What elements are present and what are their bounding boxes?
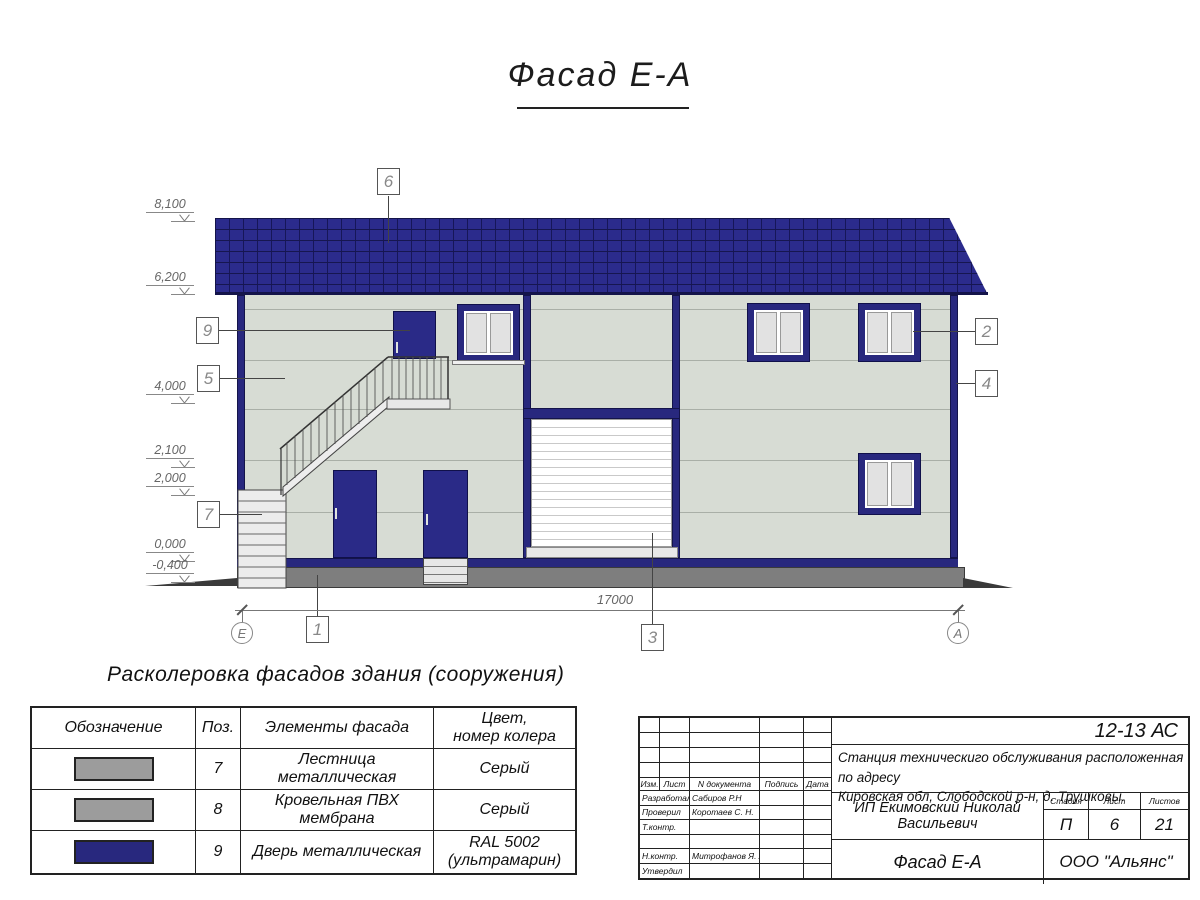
callout-number: 5	[204, 369, 213, 389]
legend-color-line2: (ультрамарин)	[448, 852, 561, 870]
col-header-sign: Подпись	[760, 778, 804, 791]
legend-heading: Расколеровка фасадов здания (сооружения)	[107, 663, 564, 687]
sheet-value: 6	[1089, 810, 1141, 839]
exterior-staircase	[238, 357, 450, 588]
date-cell	[804, 791, 831, 806]
date-cell	[804, 835, 831, 850]
legend-color-line1: RAL 5002	[469, 834, 540, 852]
change-table-cell	[760, 733, 804, 748]
role-name	[690, 835, 760, 850]
callout-3: 3	[641, 624, 664, 651]
callout-5: 5	[197, 365, 220, 392]
elevation-label: 0,000	[146, 537, 194, 551]
role-label: Т.контр.	[640, 820, 690, 835]
elevation-label: 4,000	[146, 379, 194, 393]
organization-name: ООО "Альянс"	[1044, 840, 1188, 884]
stage-label: Стадия	[1044, 793, 1089, 810]
legend-header-element: Элементы фасада	[241, 708, 434, 749]
title-block-signature-grid: Изм. Лист N документа Подпись Дата Разра…	[640, 718, 832, 878]
axis-stem	[958, 611, 959, 622]
legend-swatch-cell	[32, 831, 196, 873]
sheets-label: Листов	[1141, 793, 1188, 810]
col-header-list: Лист	[660, 778, 690, 791]
change-table-cell	[660, 748, 690, 763]
callout-number: 4	[982, 374, 991, 394]
callout-number: 2	[982, 322, 991, 342]
signature-cell	[760, 806, 804, 821]
color-swatch	[74, 840, 154, 864]
legend-header-color: Цвет, номер колера	[434, 708, 575, 749]
leader-line-5	[220, 378, 285, 379]
elevation-label: 2,000	[146, 471, 194, 485]
change-table-cell	[640, 748, 660, 763]
legend-color-cell: Серый	[434, 790, 575, 831]
axis-letter: А	[954, 626, 963, 641]
legend-pos-cell: 8	[196, 790, 241, 831]
change-table-cell	[804, 748, 831, 763]
callout-1: 1	[306, 616, 329, 643]
role-label: Утвердил	[640, 864, 690, 879]
title-block-right: 12-13 АС Станция техническиго обслуживан…	[832, 718, 1188, 878]
legend-element-cell: Кровельная ПВХ мембрана	[241, 790, 434, 831]
legend-color-cell: Серый	[434, 749, 575, 790]
drawing-sheet: Фасад Е-А	[0, 0, 1200, 900]
callout-number: 9	[203, 321, 212, 341]
legend-header-designation: Обозначение	[32, 708, 196, 749]
stage-sheet-grid: Стадия Лист Листов П 6 21	[1044, 793, 1188, 839]
elevation-arrow-icon	[180, 213, 190, 221]
signature-cell	[760, 791, 804, 806]
legend-header-color-line1: Цвет,	[482, 710, 528, 728]
col-header-ndoc: N документа	[690, 778, 760, 791]
elevation-label: -0,400	[146, 558, 194, 572]
change-table-cell	[804, 718, 831, 733]
legend-element-cell: Лестница металлическая	[241, 749, 434, 790]
elevation-base-line	[171, 294, 195, 295]
elevation-base-line	[171, 403, 195, 404]
elevation-arrow-icon	[180, 487, 190, 495]
elevation-arrow-icon	[180, 395, 190, 403]
legend-table: Обозначение Поз. Элементы фасада Цвет, н…	[30, 706, 577, 875]
sheets-value: 21	[1141, 810, 1188, 839]
change-table-cell	[690, 718, 760, 733]
title-block-bottom: Фасад Е-А ООО "Альянс"	[832, 840, 1188, 884]
col-header-izm: Изм.	[640, 778, 660, 791]
change-table-cell	[640, 718, 660, 733]
leader-line-4	[956, 383, 975, 384]
signature-cell	[760, 835, 804, 850]
color-swatch	[74, 798, 154, 822]
signature-cell	[760, 820, 804, 835]
change-table-cell	[690, 733, 760, 748]
legend-header-color-line2: номер колера	[453, 728, 556, 746]
role-name: Митрофанов Я. А.	[690, 849, 760, 864]
change-table-cell	[804, 763, 831, 778]
date-cell	[804, 864, 831, 879]
elevation-base-line	[171, 582, 195, 583]
role-name: Коротаев С. Н.	[690, 806, 760, 821]
legend-pos-cell: 9	[196, 831, 241, 873]
date-cell	[804, 806, 831, 821]
date-cell	[804, 849, 831, 864]
stage-value: П	[1044, 810, 1089, 839]
project-description: Станция техническиго обслуживания распол…	[832, 745, 1188, 793]
elevation-base-line	[171, 221, 195, 222]
role-label	[640, 835, 690, 850]
leader-line-9	[219, 330, 410, 331]
legend-swatch-cell	[32, 749, 196, 790]
callout-9: 9	[196, 317, 219, 344]
callout-6: 6	[377, 168, 400, 195]
leader-line-3	[652, 533, 653, 625]
change-table-cell	[660, 718, 690, 733]
leader-line-2	[913, 331, 975, 332]
callout-number: 1	[313, 620, 322, 640]
wall-seam	[245, 309, 950, 310]
roof-shingles	[215, 218, 988, 295]
change-table-cell	[804, 733, 831, 748]
date-cell	[804, 820, 831, 835]
axis-stem	[242, 611, 243, 622]
elevation-label: 8,100	[146, 197, 194, 211]
ground-wedge-right	[963, 578, 1013, 588]
sheet-title: Фасад Е-А	[832, 840, 1044, 884]
change-table-cell	[640, 733, 660, 748]
color-swatch	[74, 757, 154, 781]
axis-marker-a: А	[947, 622, 969, 644]
project-line1: Станция техническиго обслуживания распол…	[838, 748, 1188, 787]
role-name	[690, 820, 760, 835]
change-table-cell	[690, 763, 760, 778]
dimension-line	[235, 610, 965, 611]
leader-line-6	[388, 196, 389, 243]
axis-marker-e: Е	[231, 622, 253, 644]
elevation-arrow-icon	[180, 459, 190, 467]
role-label: Разработал	[640, 791, 690, 806]
stair-landing	[387, 399, 450, 409]
role-name	[690, 864, 760, 879]
elevation-label: 2,100	[146, 443, 194, 457]
role-label: Проверил	[640, 806, 690, 821]
title-block-middle: ИП Екимовский Николай Васильевич Стадия …	[832, 793, 1188, 840]
landing-balusters	[392, 357, 441, 399]
callout-4: 4	[975, 370, 998, 397]
signature-cell	[760, 849, 804, 864]
change-table-cell	[760, 748, 804, 763]
dimension-value: 17000	[575, 592, 655, 607]
axis-letter: Е	[238, 626, 247, 641]
callout-number: 7	[204, 505, 213, 525]
title-block: Изм. Лист N документа Подпись Дата Разра…	[638, 716, 1190, 880]
client-name: ИП Екимовский Николай Васильевич	[832, 793, 1044, 839]
elevation-arrow-icon	[180, 574, 190, 582]
callout-number: 3	[648, 628, 657, 648]
change-table-cell	[760, 718, 804, 733]
legend-pos-cell: 7	[196, 749, 241, 790]
elevation-label: 6,200	[146, 270, 194, 284]
elevation-arrow-icon	[180, 286, 190, 294]
col-header-date: Дата	[804, 778, 831, 791]
change-table-cell	[760, 763, 804, 778]
change-table-cell	[660, 733, 690, 748]
legend-header-pos: Поз.	[196, 708, 241, 749]
signature-cell	[760, 864, 804, 879]
legend-color-cell: RAL 5002 (ультрамарин)	[434, 831, 575, 873]
legend-element-cell: Дверь металлическая	[241, 831, 434, 873]
callout-2: 2	[975, 318, 998, 345]
leader-line-7	[220, 514, 262, 515]
sheet-label: Лист	[1089, 793, 1141, 810]
change-table-cell	[660, 763, 690, 778]
elevation-base-line	[171, 467, 195, 468]
elevation-base-line	[171, 495, 195, 496]
document-code: 12-13 АС	[832, 718, 1188, 745]
role-name: Сабиров Р.Н	[690, 791, 760, 806]
title-underline	[517, 107, 689, 109]
change-table-cell	[690, 748, 760, 763]
callout-7: 7	[197, 501, 220, 528]
role-label: Н.контр.	[640, 849, 690, 864]
legend-swatch-cell	[32, 790, 196, 831]
drawing-title: Фасад Е-А	[440, 56, 760, 95]
change-table-cell	[640, 763, 660, 778]
callout-number: 6	[384, 172, 393, 192]
